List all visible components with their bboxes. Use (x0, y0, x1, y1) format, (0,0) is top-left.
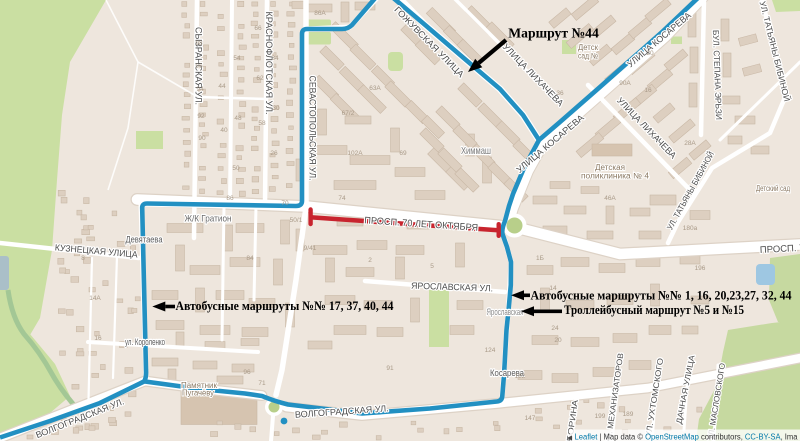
svg-text:ул. Короленко: ул. Короленко (125, 337, 165, 347)
svg-text:96: 96 (243, 369, 251, 376)
svg-text:50: 50 (232, 165, 240, 172)
svg-text:40: 40 (220, 127, 228, 134)
svg-text:46А: 46А (604, 195, 616, 202)
svg-text:Ярославская: Ярославская (487, 307, 524, 317)
svg-text:98: 98 (195, 40, 203, 47)
svg-text:28А: 28А (684, 140, 696, 147)
svg-text:84: 84 (246, 255, 254, 262)
svg-text:16: 16 (94, 335, 102, 342)
svg-text:9/41: 9/41 (304, 245, 317, 252)
svg-text:96: 96 (195, 63, 203, 70)
svg-text:44: 44 (218, 83, 226, 90)
svg-text:62: 62 (256, 75, 264, 82)
svg-text:90А: 90А (619, 80, 631, 87)
svg-text:КРАСНОФЛОТСКАЯ УЛ.: КРАСНОФЛОТСКАЯ УЛ. (264, 12, 274, 115)
svg-text:Детский сад: Детский сад (756, 184, 790, 193)
svg-text:48: 48 (234, 115, 242, 122)
svg-text:58: 58 (258, 120, 266, 127)
svg-text:Химмаш: Химмаш (461, 145, 491, 157)
svg-text:Троллейбусный маршрут №5 и №15: Троллейбусный маршрут №5 и №15 (564, 302, 744, 317)
svg-text:102А: 102А (347, 150, 363, 157)
svg-text:26: 26 (270, 150, 278, 157)
svg-text:поликлиника № 4: поликлиника № 4 (581, 172, 650, 181)
svg-text:Leaflet | Map data © OpenStree: Leaflet | Map data © OpenStreetMap contr… (575, 432, 799, 441)
svg-text:147: 147 (525, 415, 536, 422)
svg-text:189: 189 (623, 411, 634, 418)
svg-text:182: 182 (515, 373, 526, 380)
svg-text:86А: 86А (314, 10, 326, 17)
svg-text:ПРОСП. 70: ПРОСП. 70 (760, 242, 800, 256)
svg-text:124: 124 (485, 347, 496, 354)
svg-text:16: 16 (644, 87, 652, 94)
svg-text:Маршрут №44: Маршрут №44 (508, 26, 599, 41)
svg-text:67/2: 67/2 (342, 110, 355, 117)
svg-text:199: 199 (595, 413, 606, 420)
svg-text:180а: 180а (683, 225, 698, 232)
svg-text:сад №: сад № (578, 52, 598, 61)
svg-text:71: 71 (258, 380, 266, 387)
svg-text:8: 8 (81, 255, 85, 262)
svg-text:1Б: 1Б (536, 255, 544, 262)
svg-text:Автобусные маршруты №№ 1, 16,: Автобусные маршруты №№ 1, 16, 20,23,27, … (531, 288, 792, 303)
svg-text:63А: 63А (369, 85, 381, 92)
svg-text:СЕВАСТОПОЛЬСКАЯ УЛ.: СЕВАСТОПОЛЬСКАЯ УЛ. (308, 76, 318, 181)
svg-text:20: 20 (554, 337, 562, 344)
svg-text:34: 34 (271, 55, 279, 62)
svg-text:Автобусные маршруты №№ 17, 37,: Автобусные маршруты №№ 17, 37, 40, 44 (176, 298, 394, 313)
svg-text:94: 94 (196, 86, 204, 93)
svg-text:74: 74 (338, 195, 346, 202)
svg-text:24: 24 (551, 325, 559, 332)
svg-text:50/1: 50/1 (290, 217, 303, 224)
svg-text:30: 30 (272, 105, 280, 112)
svg-text:2: 2 (368, 257, 372, 264)
svg-text:69: 69 (399, 150, 407, 157)
svg-text:91: 91 (386, 365, 394, 372)
svg-text:92: 92 (197, 113, 205, 120)
svg-text:Пугачёву: Пугачёву (182, 389, 214, 398)
svg-text:Девятаева: Девятаева (126, 235, 163, 245)
svg-text:20: 20 (646, 50, 654, 57)
svg-text:90: 90 (198, 135, 206, 142)
svg-text:Ж/К Гратион: Ж/К Гратион (185, 214, 232, 225)
svg-text:70: 70 (281, 200, 289, 207)
svg-text:54: 54 (233, 55, 241, 62)
svg-text:66: 66 (254, 25, 262, 32)
svg-text:196: 196 (695, 265, 706, 272)
svg-text:14А: 14А (89, 295, 101, 302)
svg-text:5: 5 (430, 263, 434, 270)
svg-text:86: 86 (226, 195, 234, 202)
svg-text:36: 36 (556, 90, 564, 97)
